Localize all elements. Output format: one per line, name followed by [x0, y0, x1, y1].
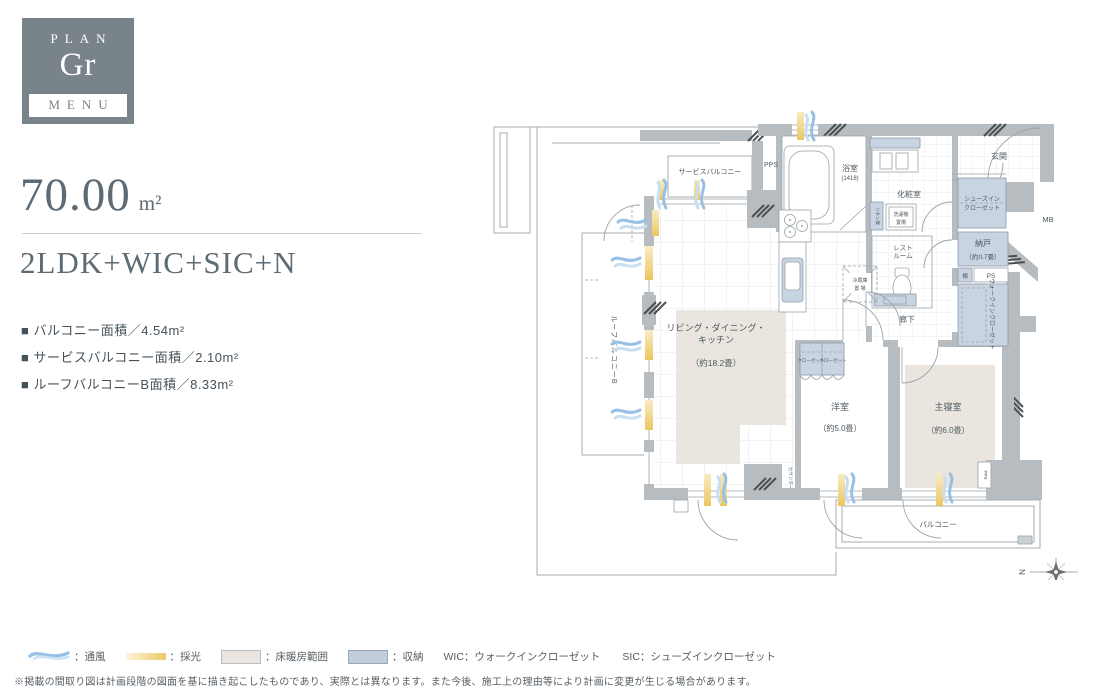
compass-north-label: N — [1018, 569, 1027, 575]
label-restroom-2: ルーム — [893, 252, 913, 260]
label-wic: ウォークインクローゼット — [988, 278, 996, 350]
shoes-in-closet: シューズイン クローゼット — [958, 178, 1006, 228]
detail-roof-balcony: ■ ルーフバルコニーB面積／8.33m² — [21, 371, 239, 398]
plan-label: PLAN — [22, 31, 134, 47]
detail-balcony: ■ バルコニー面積／4.54m² — [21, 317, 239, 344]
disclaimer: ※掲載の間取り図は計画段階の図面を基に描き起こしたものであり、実際とは異なります… — [14, 673, 756, 688]
floorplan: ルーフバルコニーB サービスバルコニー — [478, 108, 1094, 580]
label-corridor: 廊下 — [899, 314, 915, 324]
area-details: ■ バルコニー面積／4.54m² ■ サービスバルコニー面積／2.10m² ■ … — [21, 317, 239, 398]
legend-vent-label: ：通風 — [74, 649, 106, 664]
label-balcony: バルコニー — [919, 520, 956, 529]
legend-sic-note: SIC：シューズインクローゼット — [622, 649, 775, 664]
divider — [22, 233, 422, 234]
label-storeroom: 納戸 — [975, 238, 991, 248]
walk-in-closet: ウォークインクローゼット — [958, 278, 1008, 350]
legend-wic-note: WIC：ウォークインクローゼット — [444, 649, 601, 664]
compass: N — [1018, 558, 1078, 580]
label-ldk-size: （約18.2畳） — [691, 358, 742, 368]
label-fridge-2: 置 場 — [854, 285, 865, 292]
label-counter: カウンター — [787, 467, 794, 490]
label-bath: 浴室 — [842, 163, 858, 173]
label-pps: PPS — [764, 162, 778, 169]
label-mb: MB — [1042, 215, 1053, 224]
light-icon — [126, 653, 166, 660]
label-fridge-1: 冷蔵庫 — [852, 277, 867, 284]
label-bath-size: (1418) — [841, 176, 858, 182]
label-main-bedroom: 主寝室 — [934, 401, 961, 412]
floor-heating-icon — [221, 650, 261, 664]
balcony: バルコニー — [698, 500, 1040, 548]
label-main-bedroom-size: （約6.0畳） — [926, 425, 969, 435]
closets: クローゼット クローゼット — [797, 343, 847, 380]
label-ldk-2: キッチン — [698, 335, 734, 345]
label-western-room-size: （約5.0畳） — [818, 423, 861, 433]
detail-service-balcony: ■ サービスバルコニー面積／2.10m² — [21, 344, 239, 371]
legend: ：通風 ：採光 ：床暖房範囲 ：収納 WIC：ウォークインクローゼット SIC：… — [28, 649, 798, 664]
plan-badge[interactable]: PLAN Gr MENU — [22, 18, 134, 124]
label-western-room: 洋室 — [831, 401, 849, 412]
label-washer-1: 洗濯機 — [893, 211, 908, 218]
area-value: 70.00 — [20, 169, 131, 221]
label-storeroom-size: （約0.7畳） — [965, 252, 1000, 261]
vent-icon — [28, 649, 70, 664]
label-powder-room: 化粧室 — [897, 189, 921, 199]
legend-light-label: ：採光 — [170, 649, 202, 664]
label-service-balcony: サービスバルコニー — [679, 167, 742, 176]
label-closet-2: クローゼット — [819, 357, 847, 364]
label-sic-1: シューズイン — [964, 195, 1000, 203]
label-ldk-1: リビング・ダイニング・ — [666, 322, 765, 333]
label-linen: リネン庫 — [874, 207, 881, 225]
layout-type: 2LDK+WIC+SIC+N — [20, 245, 297, 281]
area-heading: 70.00m² — [20, 168, 161, 222]
plan-code: Gr — [22, 47, 134, 85]
label-restroom-1: レスト — [893, 244, 913, 252]
label-shelf: 棚 — [962, 272, 968, 280]
label-pps-small: PPS — [983, 470, 988, 479]
menu-button[interactable]: MENU — [29, 94, 127, 117]
legend-storage-label: ：収納 — [392, 649, 424, 664]
service-balcony: サービスバルコニー — [668, 156, 752, 197]
storage-icon — [348, 650, 388, 664]
label-sic-2: クローゼット — [964, 204, 1000, 212]
label-washer-2: 置場 — [896, 219, 906, 226]
area-unit: m² — [139, 191, 162, 215]
legend-heating-label: ：床暖房範囲 — [265, 649, 328, 664]
